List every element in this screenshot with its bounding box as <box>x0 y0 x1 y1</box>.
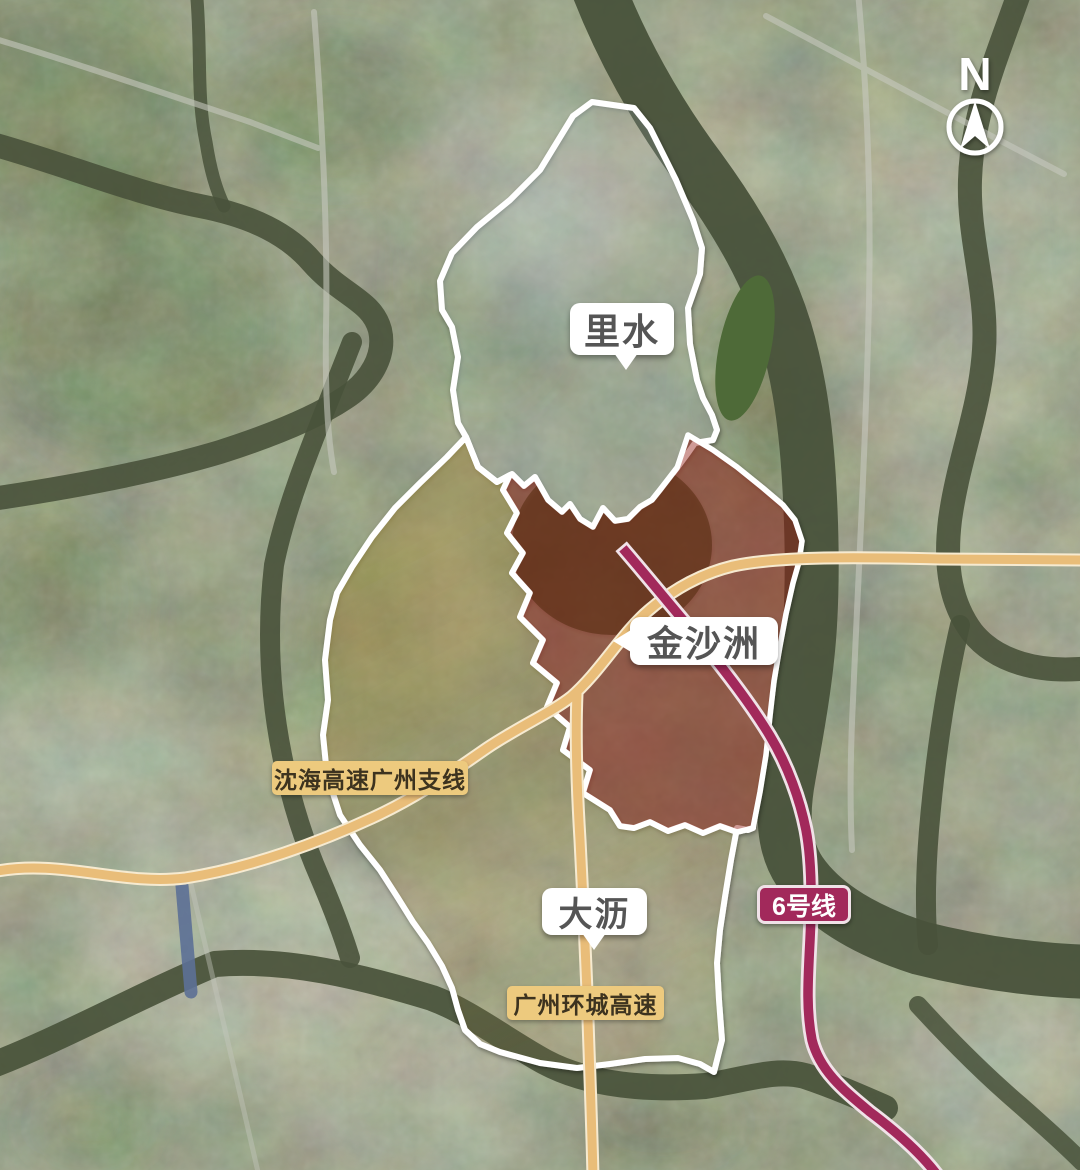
compass-n-label: N <box>958 48 991 100</box>
label-tail <box>582 933 606 950</box>
region-label-jinshazhou: 金沙洲 <box>630 617 778 665</box>
satellite-map: N 里水 金沙洲 大沥 沈海高速广州支线 广州环城高速 6号线 <box>0 0 1080 1170</box>
road-label-shenhai-text: 沈海高速广州支线 <box>274 761 466 795</box>
region-label-dali: 大沥 <box>542 888 647 935</box>
road-label-shenhai-expressway: 沈海高速广州支线 <box>272 761 468 795</box>
label-tail <box>613 630 631 652</box>
region-label-lishui: 里水 <box>570 303 674 355</box>
label-tail <box>614 353 638 370</box>
metro-label-line-6: 6号线 <box>757 885 851 924</box>
region-label-jinshazhou-text: 金沙洲 <box>647 615 761 667</box>
canal-blue <box>182 886 191 992</box>
metro-label-line-6-text: 6号线 <box>772 887 836 923</box>
region-label-lishui-text: 里水 <box>584 303 660 355</box>
road-label-ring-expressway: 广州环城高速 <box>507 986 664 1020</box>
road-label-ring-text: 广州环城高速 <box>514 986 658 1020</box>
region-label-dali-text: 大沥 <box>559 887 631 936</box>
